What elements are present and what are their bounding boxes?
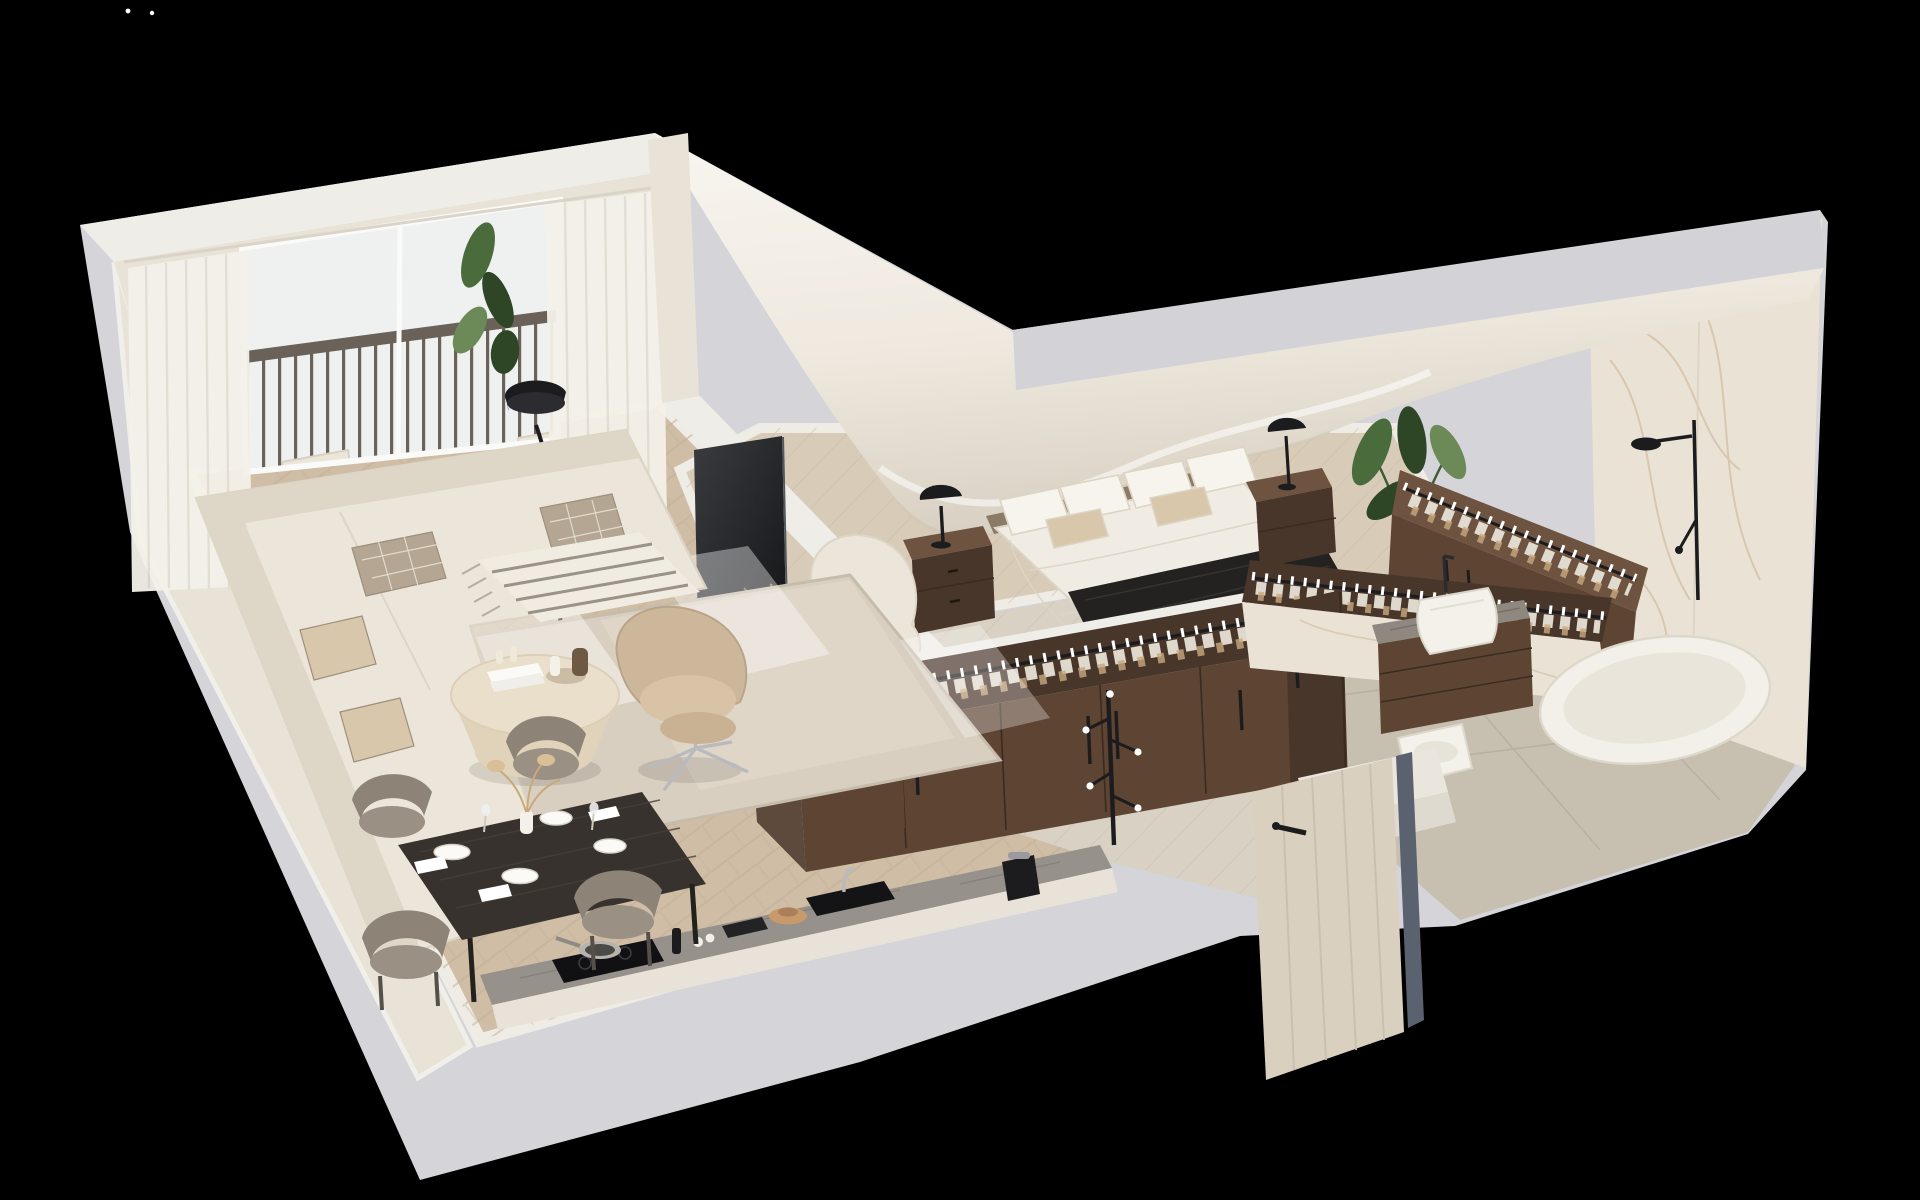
oil-bottle — [672, 928, 681, 954]
nightstand-right — [1246, 468, 1336, 568]
dark-vase — [572, 648, 588, 676]
wine-glass — [481, 804, 490, 816]
white-vase — [550, 656, 560, 676]
apartment-floorplan-render — [0, 0, 1920, 1200]
render-canvas — [0, 0, 1920, 1200]
dining-chair — [506, 716, 586, 780]
speck-top-left-1 — [126, 9, 131, 14]
sink-faucet — [1444, 556, 1446, 592]
pampas-vase — [520, 810, 533, 834]
speck-top-left-2 — [150, 11, 154, 15]
entry — [1252, 752, 1424, 1080]
nightstand-left — [903, 526, 995, 634]
shower-head — [1631, 438, 1661, 451]
wine-glass — [589, 802, 598, 814]
entry-door — [1252, 758, 1404, 1080]
window-mullion — [398, 224, 400, 456]
dining-chair — [352, 774, 432, 838]
